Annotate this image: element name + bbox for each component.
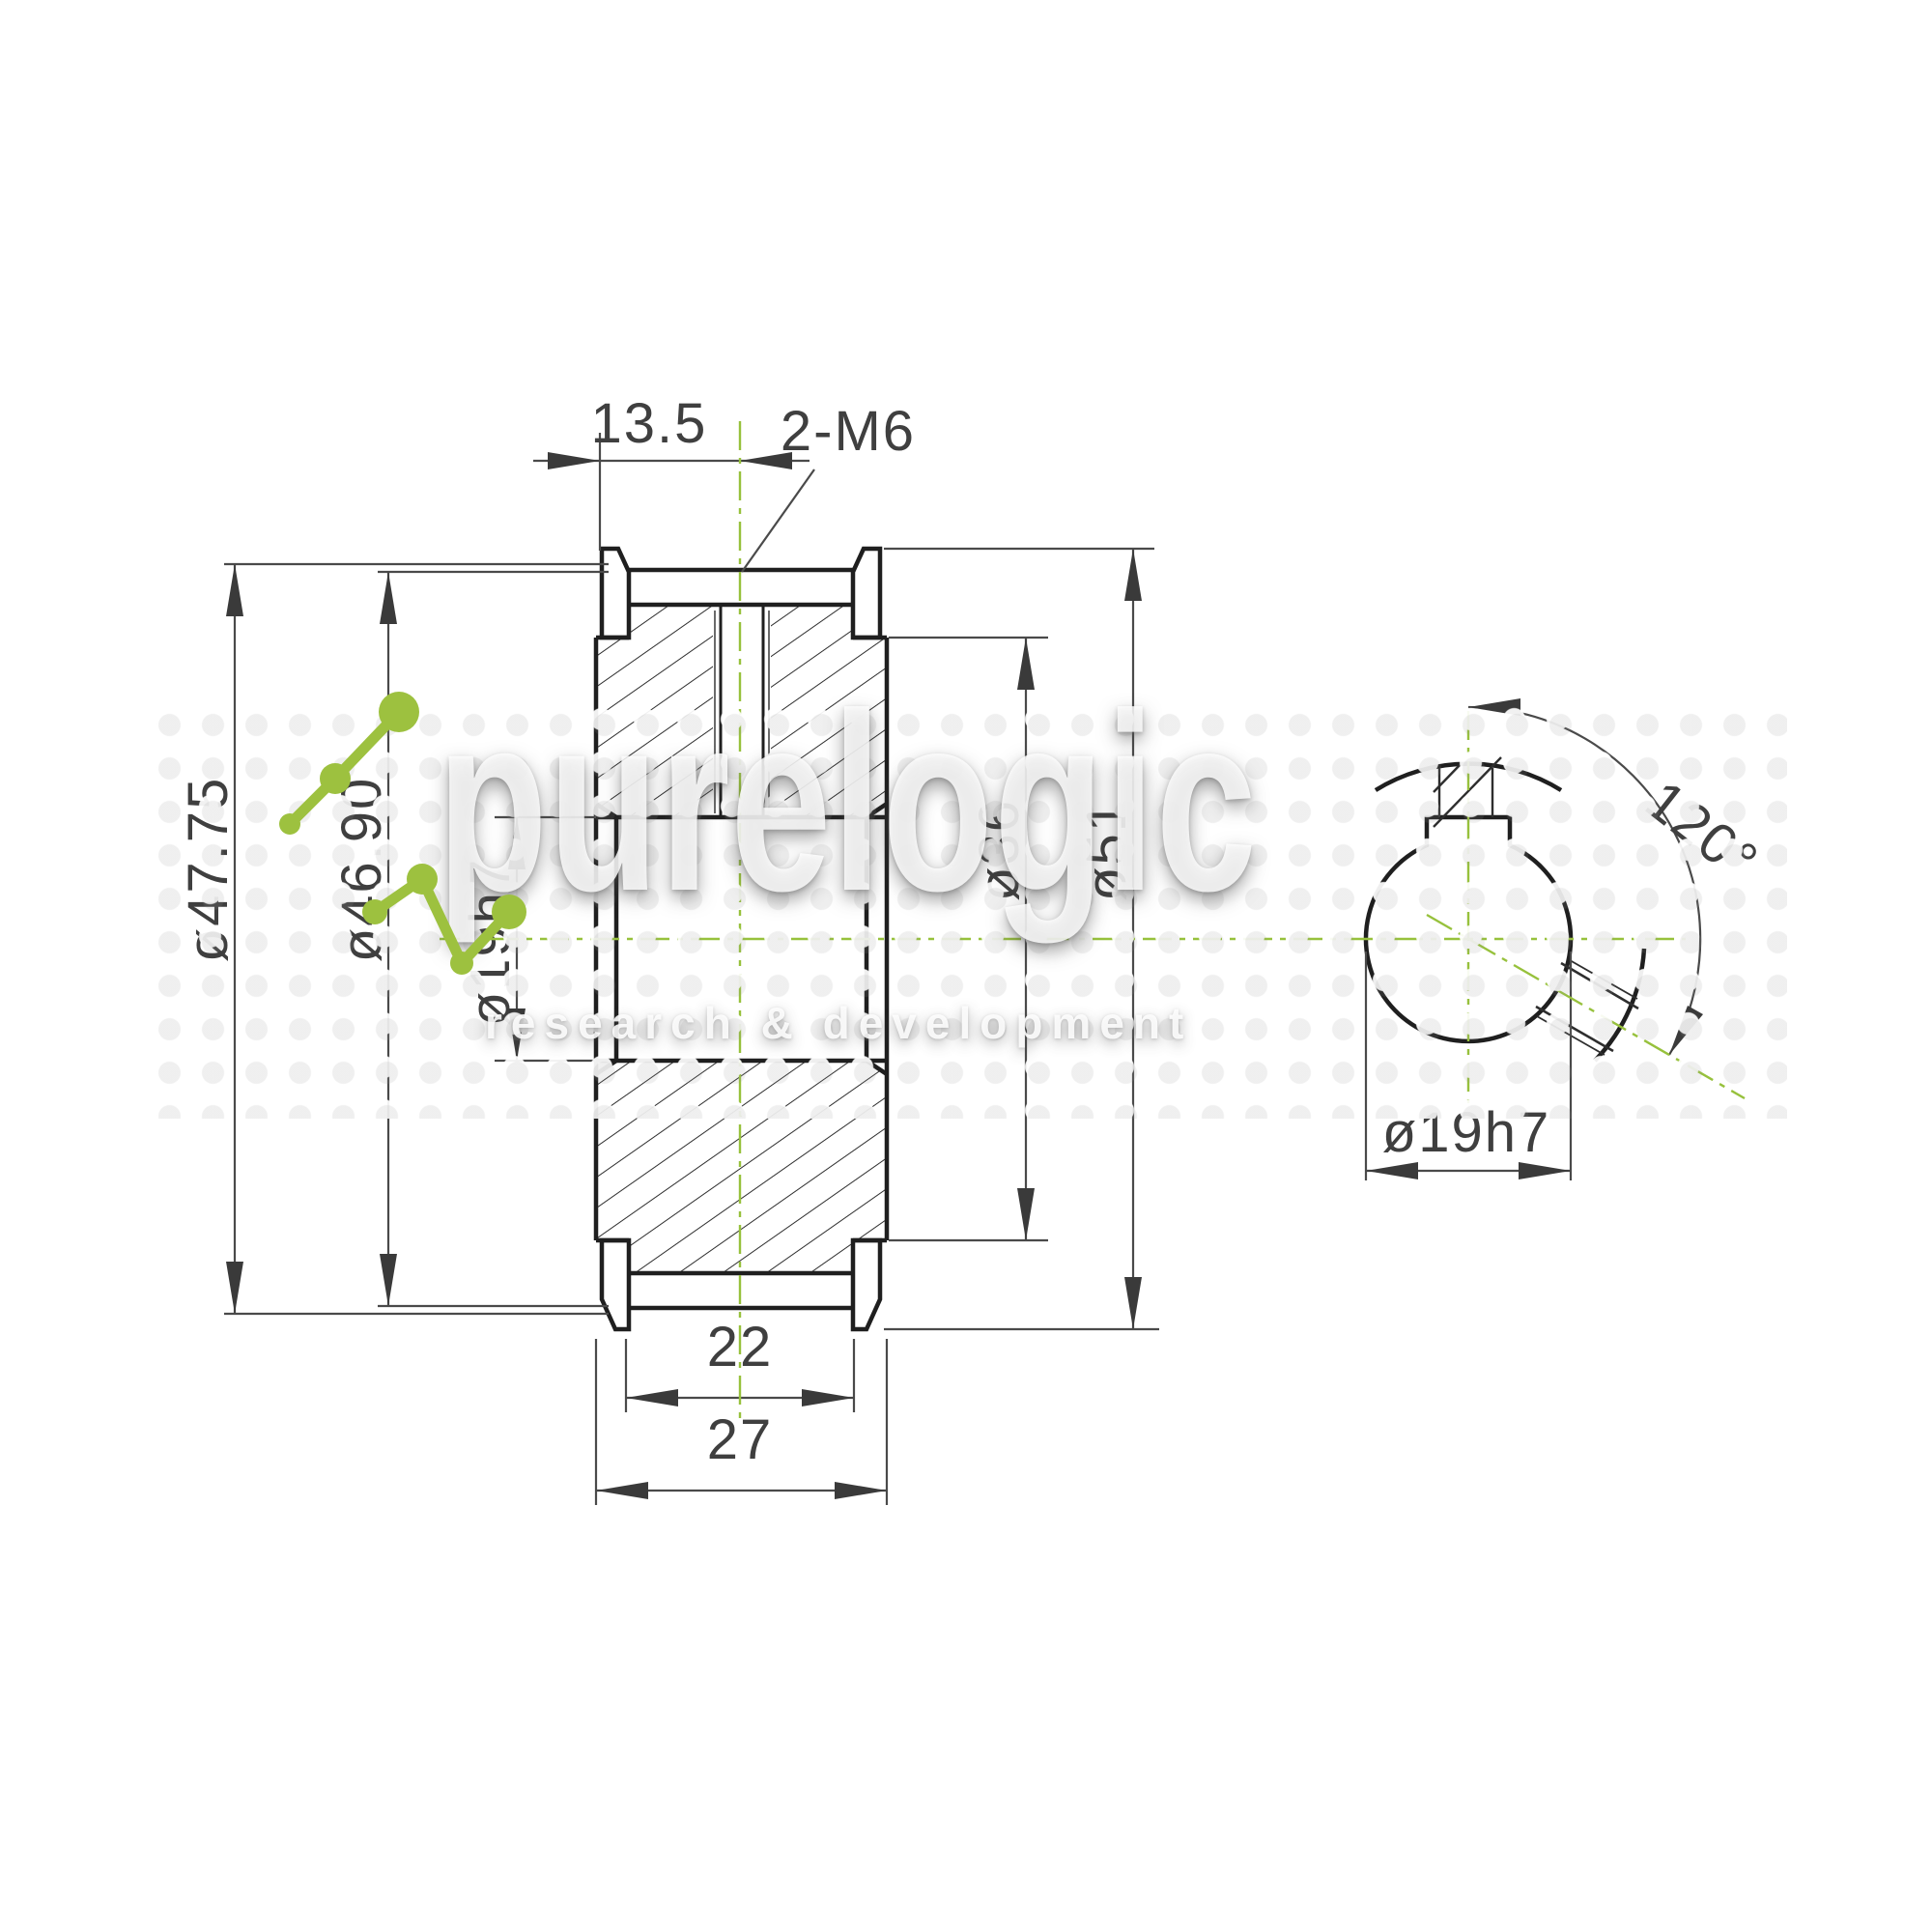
watermark-tagline: research & development: [485, 997, 1192, 1049]
dim-angle-120: [1468, 698, 1703, 1055]
leader-2-m6: [742, 469, 814, 572]
dim-text-2-m6: 2-M6: [781, 400, 916, 463]
dim-text-od-pitch: ø46.90: [330, 777, 393, 963]
m6-hole-120: [1536, 960, 1638, 1055]
technical-drawing: 13.5 2-M6 ø47.75 ø46.90 ø19h7 ø36 ø51 22…: [0, 0, 1932, 1932]
main-view: 13.5 2-M6 ø47.75 ø46.90 ø19h7 ø36 ø51 22…: [177, 392, 1159, 1505]
watermark-brand: purelogic: [437, 676, 1257, 929]
dim-text-od-tip: ø47.75: [177, 777, 240, 963]
drawing-canvas: 13.5 2-M6 ø47.75 ø46.90 ø19h7 ø36 ø51 22…: [0, 0, 1932, 1932]
dim-text-13-5: 13.5: [591, 392, 708, 455]
dim-text-bore-end: ø19h7: [1382, 1101, 1550, 1164]
dimensions-main: [224, 433, 1159, 1505]
dim-text-angle: 120°: [1634, 769, 1771, 895]
